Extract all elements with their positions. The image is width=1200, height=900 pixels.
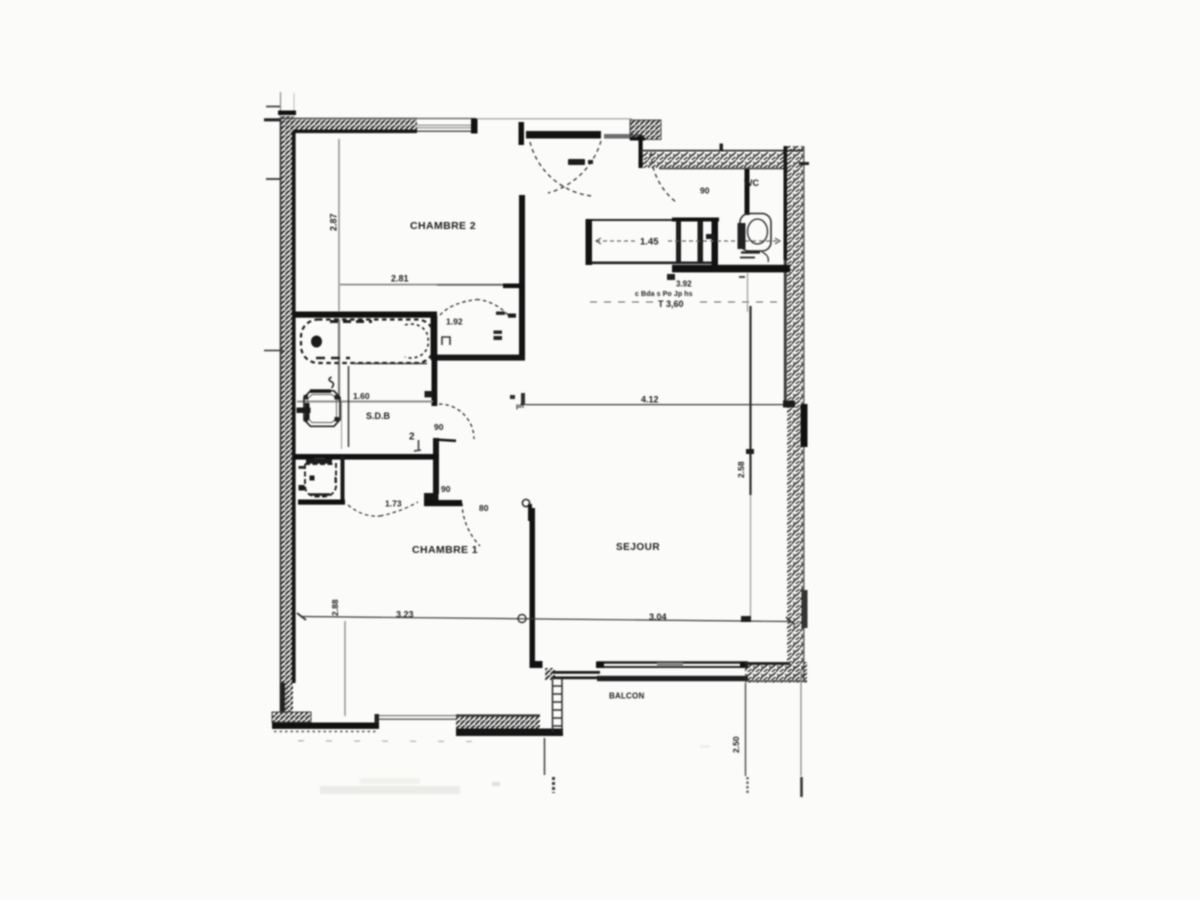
svg-text:2.88: 2.88 — [330, 599, 340, 616]
svg-text:2: 2 — [409, 432, 415, 443]
svg-text:2.87: 2.87 — [329, 213, 339, 231]
svg-text:3.04: 3.04 — [649, 612, 667, 622]
svg-text:1.45: 1.45 — [640, 237, 659, 248]
svg-text:1.73: 1.73 — [385, 499, 402, 509]
svg-text:WC: WC — [744, 178, 759, 188]
svg-text:S.D.B: S.D.B — [366, 411, 391, 421]
svg-text:ph: ph — [516, 403, 524, 410]
svg-text:2.81: 2.81 — [391, 274, 409, 284]
svg-text:3.92: 3.92 — [676, 280, 692, 289]
svg-text:CHAMBRE 2: CHAMBRE 2 — [410, 220, 476, 232]
svg-text:c Bda s Po Jp hs: c Bda s Po Jp hs — [635, 291, 693, 298]
svg-text:CHAMBRE 1: CHAMBRE 1 — [412, 544, 478, 556]
svg-text:4.12: 4.12 — [641, 395, 659, 405]
svg-text:3.23: 3.23 — [396, 610, 414, 620]
svg-text:1.60: 1.60 — [353, 391, 370, 401]
svg-text:90: 90 — [700, 186, 710, 196]
svg-text:2.50: 2.50 — [731, 736, 741, 753]
svg-text:90: 90 — [434, 422, 444, 432]
svg-text:T 3,60: T 3,60 — [658, 299, 684, 309]
svg-text:2.58: 2.58 — [736, 461, 746, 478]
svg-text:80: 80 — [479, 503, 489, 513]
svg-text:SEJOUR: SEJOUR — [616, 542, 660, 553]
svg-text:BALCON: BALCON — [609, 692, 644, 701]
svg-text:90: 90 — [441, 484, 451, 494]
svg-text:1.92: 1.92 — [446, 317, 463, 327]
